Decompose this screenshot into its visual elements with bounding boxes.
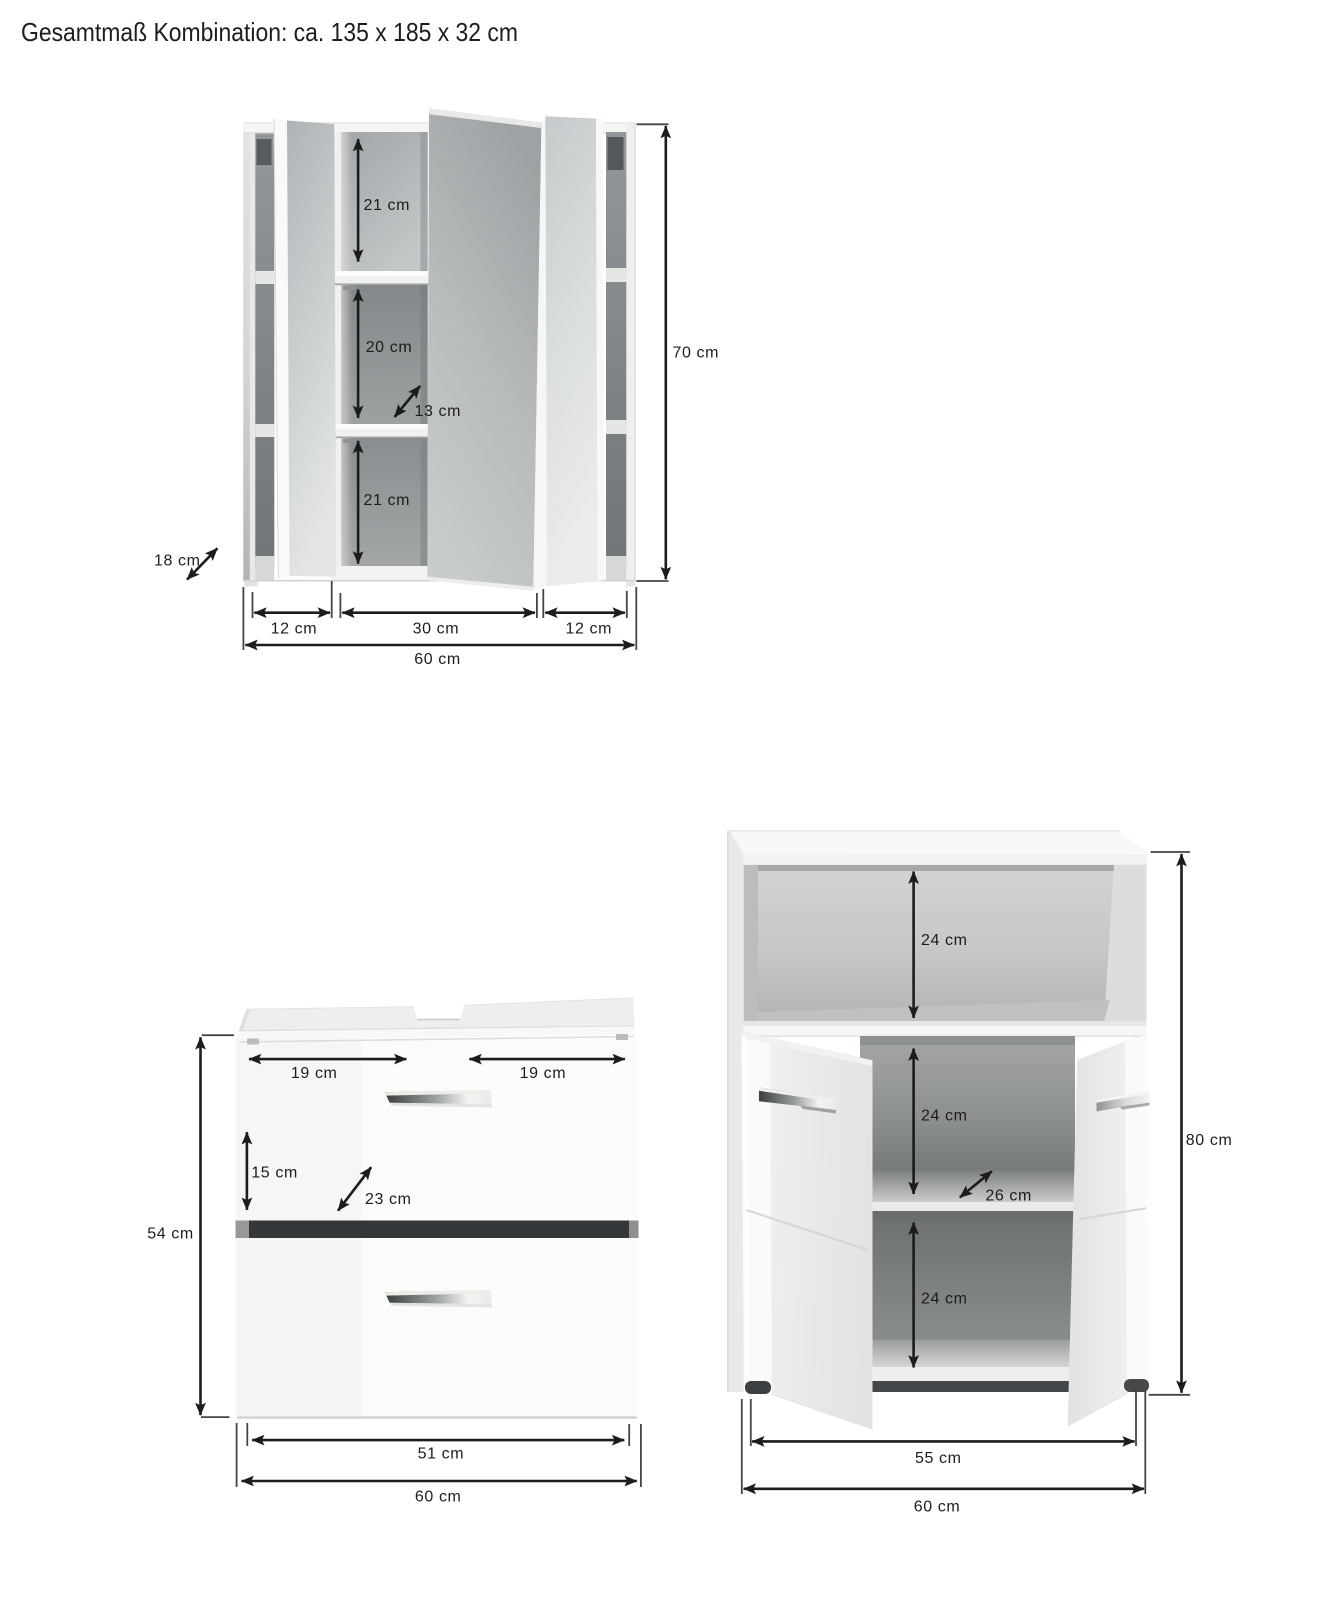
svg-text:51 cm: 51 cm [418,1446,465,1463]
svg-text:60 cm: 60 cm [415,1489,462,1506]
svg-text:30 cm: 30 cm [413,621,460,638]
svg-text:60 cm: 60 cm [414,651,461,668]
svg-text:21 cm: 21 cm [364,492,411,509]
svg-text:21 cm: 21 cm [364,197,411,214]
svg-text:26 cm: 26 cm [985,1188,1032,1205]
svg-text:18 cm: 18 cm [154,552,201,569]
svg-text:24 cm: 24 cm [921,1107,968,1124]
svg-text:70 cm: 70 cm [673,344,720,361]
svg-text:54 cm: 54 cm [147,1225,194,1242]
svg-text:15 cm: 15 cm [251,1165,298,1182]
svg-text:13 cm: 13 cm [415,403,462,420]
svg-text:80 cm: 80 cm [1186,1132,1233,1149]
svg-text:55 cm: 55 cm [915,1450,962,1467]
svg-text:19 cm: 19 cm [520,1065,567,1082]
svg-text:24 cm: 24 cm [921,1291,968,1308]
svg-text:19 cm: 19 cm [291,1065,338,1082]
svg-text:Gesamtmaß Kombination: ca. 135: Gesamtmaß Kombination: ca. 135 x 185 x 3… [21,17,518,47]
svg-text:23 cm: 23 cm [365,1191,412,1208]
svg-text:12 cm: 12 cm [271,621,318,638]
svg-text:20 cm: 20 cm [366,339,413,356]
svg-text:24 cm: 24 cm [921,932,968,949]
svg-text:12 cm: 12 cm [566,621,613,638]
svg-text:60 cm: 60 cm [914,1499,961,1516]
